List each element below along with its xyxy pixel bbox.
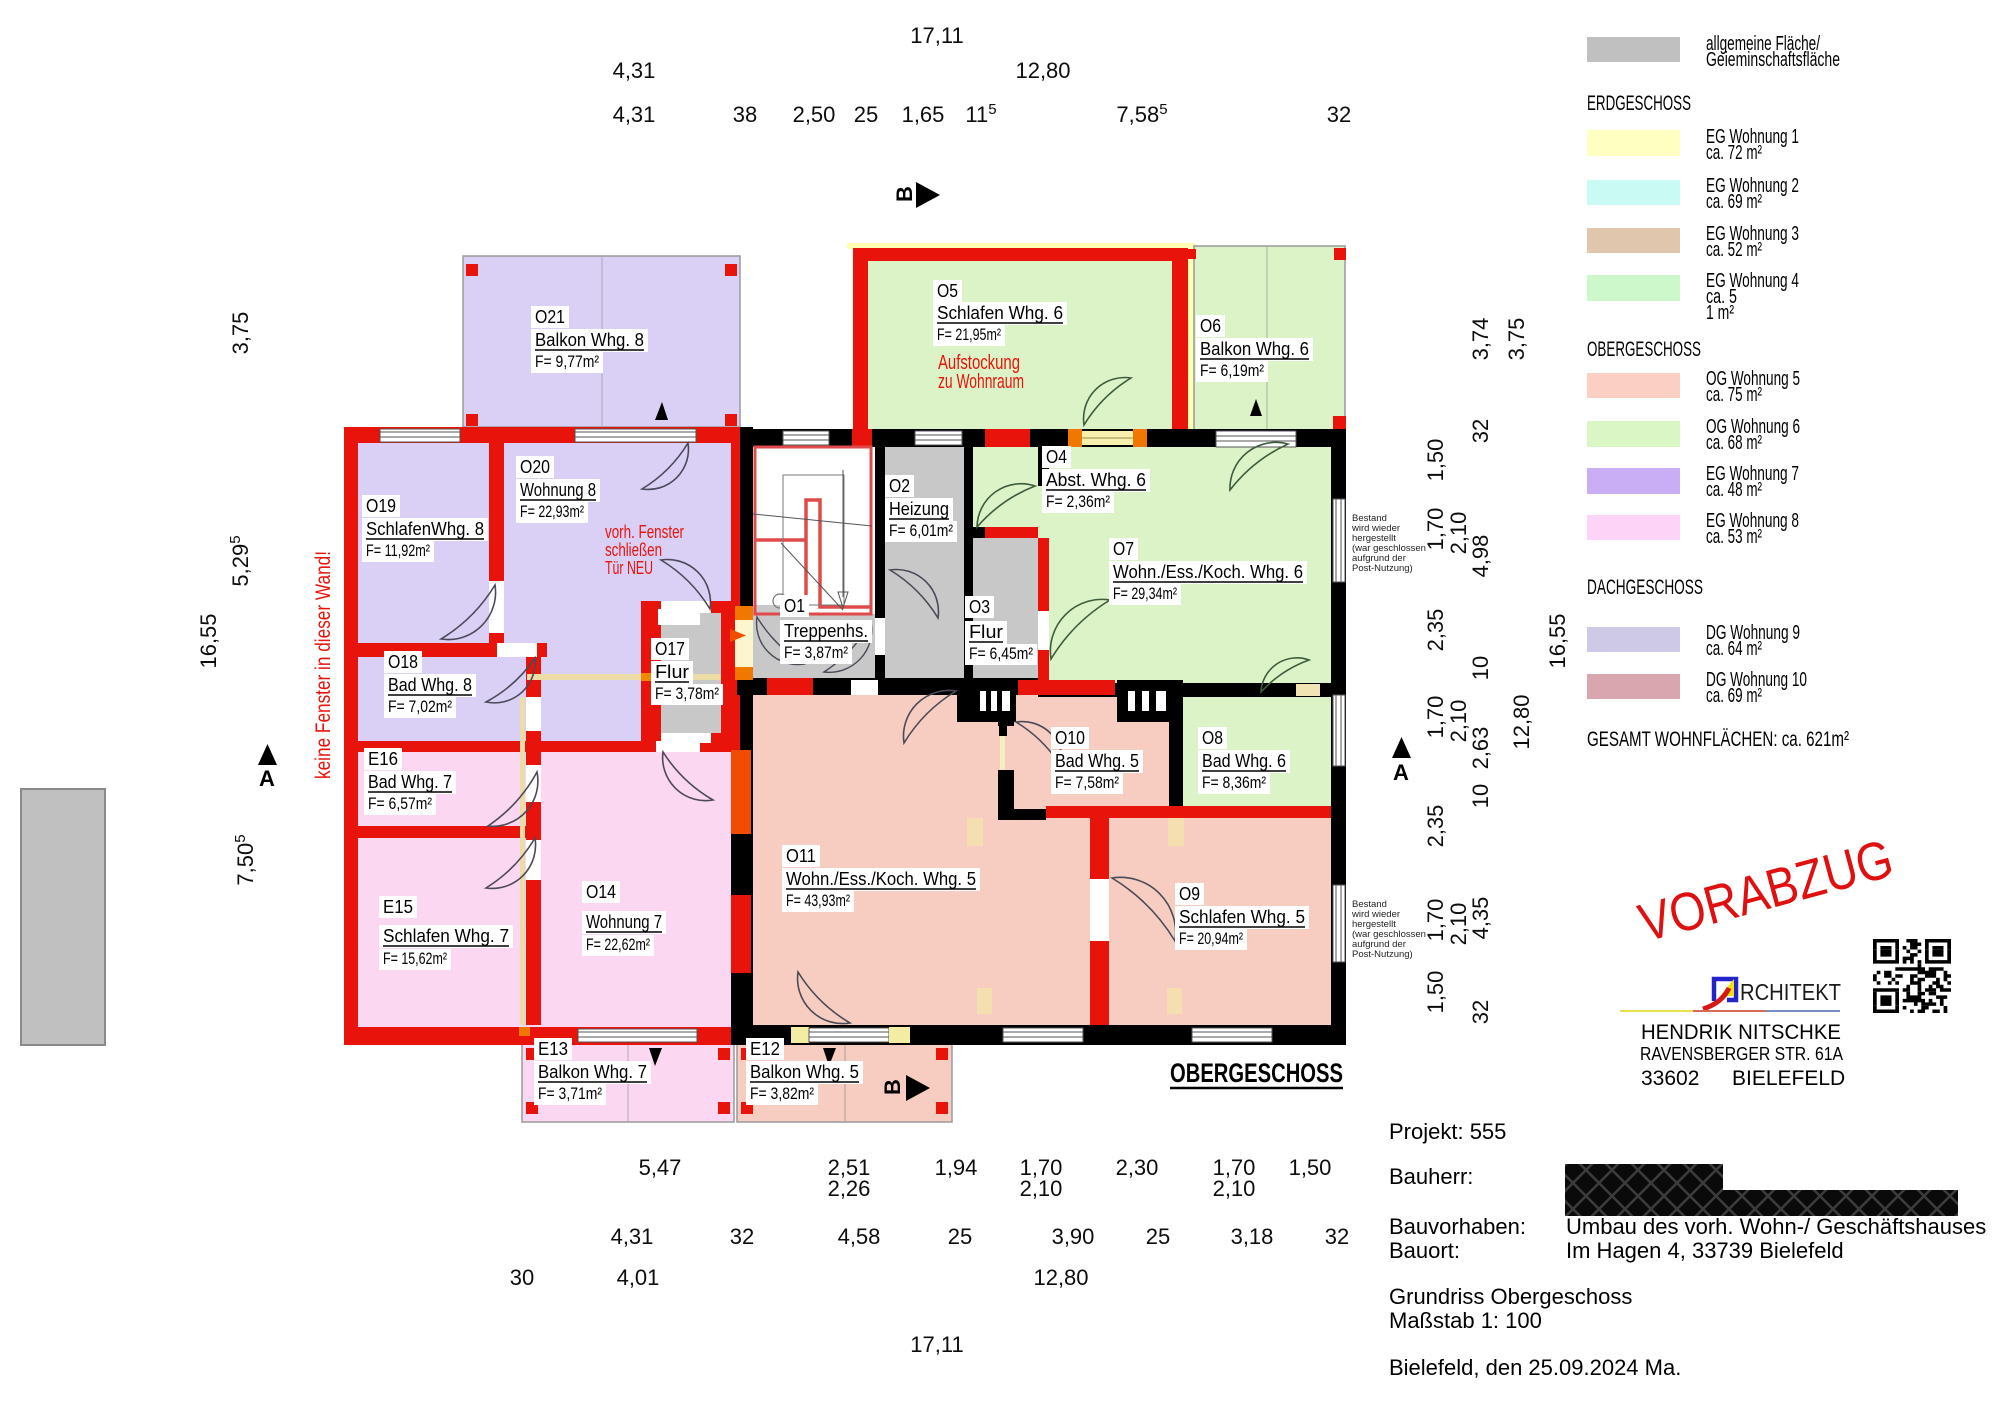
svg-text:Flur: Flur xyxy=(969,622,1003,642)
svg-text:O17: O17 xyxy=(655,639,685,659)
svg-text:vorh. Fenster: vorh. Fenster xyxy=(605,522,684,542)
svg-text:Bad Whg. 6: Bad Whg. 6 xyxy=(1202,751,1286,771)
svg-text:Abst. Whg. 6: Abst. Whg. 6 xyxy=(1046,470,1146,490)
svg-text:5,47: 5,47 xyxy=(639,1155,682,1180)
svg-text:F= 20,94m²: F= 20,94m² xyxy=(1179,929,1243,948)
svg-text:OBERGESCHOSS: OBERGESCHOSS xyxy=(1587,338,1701,361)
svg-text:3,18: 3,18 xyxy=(1231,1224,1274,1249)
svg-text:2,10: 2,10 xyxy=(1213,1176,1256,1201)
svg-text:keine Fenster in dieser Wand!: keine Fenster in dieser Wand! xyxy=(312,551,335,779)
svg-text:F= 3,71m²: F= 3,71m² xyxy=(538,1084,602,1103)
svg-text:Wohn./Ess./Koch. Whg. 5: Wohn./Ess./Koch. Whg. 5 xyxy=(786,869,976,889)
svg-text:F= 6,01m²: F= 6,01m² xyxy=(889,521,953,540)
svg-text:32: 32 xyxy=(1468,419,1493,443)
svg-text:Bauvorhaben:: Bauvorhaben: xyxy=(1389,1214,1526,1239)
svg-text:1,70: 1,70 xyxy=(1423,508,1448,551)
svg-text:Bielefeld, den 25.09.2024 Ma.: Bielefeld, den 25.09.2024 Ma. xyxy=(1389,1355,1681,1380)
svg-text:F= 6,57m²: F= 6,57m² xyxy=(368,794,432,813)
svg-text:25: 25 xyxy=(948,1224,972,1249)
svg-text:RCHITEKT: RCHITEKT xyxy=(1740,979,1841,1005)
svg-text:F= 22,93m²: F= 22,93m² xyxy=(520,502,584,521)
svg-text:1,50: 1,50 xyxy=(1423,439,1448,482)
svg-text:4,31: 4,31 xyxy=(613,102,656,127)
svg-text:Maßstab 1: 100: Maßstab 1: 100 xyxy=(1389,1308,1542,1333)
svg-text:Balkon Whg. 5: Balkon Whg. 5 xyxy=(750,1062,859,1082)
svg-text:O3: O3 xyxy=(969,597,990,617)
svg-text:2,26: 2,26 xyxy=(828,1176,871,1201)
svg-text:F= 3,78m²: F= 3,78m² xyxy=(655,684,719,703)
svg-text:O4: O4 xyxy=(1046,447,1067,467)
svg-text:ca. 69 m²: ca. 69 m² xyxy=(1706,685,1762,707)
svg-text:Tür NEU: Tür NEU xyxy=(605,558,653,578)
svg-text:ca. 48 m²: ca. 48 m² xyxy=(1706,479,1762,501)
svg-text:Heizung: Heizung xyxy=(889,499,949,519)
svg-text:32: 32 xyxy=(1327,102,1351,127)
svg-text:O10: O10 xyxy=(1055,728,1085,748)
svg-text:38: 38 xyxy=(733,102,757,127)
svg-text:30: 30 xyxy=(510,1265,534,1290)
svg-text:O8: O8 xyxy=(1202,728,1223,748)
svg-text:Bad Whg. 7: Bad Whg. 7 xyxy=(368,772,452,792)
svg-text:F= 29,34m²: F= 29,34m² xyxy=(1113,584,1177,603)
svg-text:ca. 68 m²: ca. 68 m² xyxy=(1706,432,1762,454)
svg-text:32: 32 xyxy=(1325,1224,1349,1249)
svg-text:Im Hagen 4, 33739 Bielefeld: Im Hagen 4, 33739 Bielefeld xyxy=(1566,1238,1844,1263)
svg-text:ca. 53 m²: ca. 53 m² xyxy=(1706,526,1762,548)
svg-text:O11: O11 xyxy=(786,846,816,866)
svg-text:Umbau des vorh. Wohn-/ Geschäf: Umbau des vorh. Wohn-/ Geschäftshauses xyxy=(1566,1214,1986,1239)
svg-text:2,30: 2,30 xyxy=(1116,1155,1159,1180)
svg-text:Treppenhs.: Treppenhs. xyxy=(784,621,868,641)
svg-text:Wohn./Ess./Koch. Whg. 6: Wohn./Ess./Koch. Whg. 6 xyxy=(1113,562,1303,582)
svg-text:25: 25 xyxy=(854,102,878,127)
svg-text:1,50: 1,50 xyxy=(1289,1155,1332,1180)
svg-text:2,35: 2,35 xyxy=(1423,805,1448,848)
svg-text:4,58: 4,58 xyxy=(838,1224,881,1249)
svg-text:17,11: 17,11 xyxy=(910,1332,963,1357)
svg-text:GESAMT WOHNFLÄCHEN: ca. 621m²: GESAMT WOHNFLÄCHEN: ca. 621m² xyxy=(1587,728,1849,751)
svg-text:ERDGESCHOSS: ERDGESCHOSS xyxy=(1587,92,1691,115)
svg-text:2,10: 2,10 xyxy=(1020,1176,1063,1201)
svg-text:4,01: 4,01 xyxy=(617,1265,660,1290)
svg-text:3,90: 3,90 xyxy=(1052,1224,1095,1249)
svg-text:B: B xyxy=(880,1079,905,1095)
svg-text:Post-Nutzung): Post-Nutzung) xyxy=(1352,563,1413,574)
svg-text:Bad Whg. 5: Bad Whg. 5 xyxy=(1055,751,1139,771)
svg-text:O20: O20 xyxy=(520,457,550,477)
svg-text:B: B xyxy=(892,186,917,202)
svg-text:A: A xyxy=(1393,760,1409,785)
svg-text:4,31: 4,31 xyxy=(613,58,656,83)
svg-text:zu Wohnraum: zu Wohnraum xyxy=(938,371,1024,393)
svg-text:Schlafen Whg. 5: Schlafen Whg. 5 xyxy=(1179,907,1305,927)
svg-text:DACHGESCHOSS: DACHGESCHOSS xyxy=(1587,576,1703,599)
svg-text:17,11: 17,11 xyxy=(910,23,963,48)
svg-text:BIELEFELD: BIELEFELD xyxy=(1732,1067,1845,1090)
svg-text:ca. 75 m²: ca. 75 m² xyxy=(1706,384,1762,406)
svg-text:F= 6,19m²: F= 6,19m² xyxy=(1200,361,1264,380)
svg-text:32: 32 xyxy=(730,1224,754,1249)
svg-text:F= 22,62m²: F= 22,62m² xyxy=(586,935,650,954)
svg-text:Flur: Flur xyxy=(655,662,689,682)
svg-text:ca. 69 m²: ca. 69 m² xyxy=(1706,191,1762,213)
svg-text:Projekt: 555: Projekt: 555 xyxy=(1389,1119,1506,1144)
svg-text:F= 3,82m²: F= 3,82m² xyxy=(750,1084,814,1103)
svg-text:O14: O14 xyxy=(586,882,616,902)
svg-text:F= 11,92m²: F= 11,92m² xyxy=(366,541,430,560)
svg-text:F= 7,58m²: F= 7,58m² xyxy=(1055,773,1119,792)
svg-text:O1: O1 xyxy=(784,596,805,616)
svg-text:O5: O5 xyxy=(937,281,958,301)
svg-text:ca. 72 m²: ca. 72 m² xyxy=(1706,142,1762,164)
svg-text:O18: O18 xyxy=(388,652,418,672)
svg-text:Post-Nutzung): Post-Nutzung) xyxy=(1352,949,1413,960)
svg-text:Schlafen Whg. 7: Schlafen Whg. 7 xyxy=(383,926,509,946)
svg-text:F= 15,62m²: F= 15,62m² xyxy=(383,949,447,968)
svg-text:Balkon Whg. 8: Balkon Whg. 8 xyxy=(535,330,644,350)
svg-text:RAVENSBERGER STR. 61A: RAVENSBERGER STR. 61A xyxy=(1640,1044,1843,1064)
svg-text:4,35: 4,35 xyxy=(1468,897,1493,940)
svg-text:O6: O6 xyxy=(1200,316,1221,336)
svg-text:Bad Whg. 8: Bad Whg. 8 xyxy=(388,675,472,695)
svg-text:Schlafen Whg. 6: Schlafen Whg. 6 xyxy=(937,303,1063,323)
svg-text:1,94: 1,94 xyxy=(935,1155,978,1180)
svg-text:O2: O2 xyxy=(889,476,910,496)
svg-text:E13: E13 xyxy=(538,1039,568,1059)
svg-text:Geieminschaftsfläche: Geieminschaftsfläche xyxy=(1706,49,1840,71)
svg-text:1,70: 1,70 xyxy=(1423,899,1448,942)
svg-text:Bauort:: Bauort: xyxy=(1389,1238,1460,1263)
svg-text:F= 6,45m²: F= 6,45m² xyxy=(969,644,1033,663)
svg-text:O21: O21 xyxy=(535,307,565,327)
svg-text:O19: O19 xyxy=(366,496,396,516)
svg-text:12,80: 12,80 xyxy=(1033,1265,1088,1290)
svg-text:4,31: 4,31 xyxy=(611,1224,654,1249)
svg-text:O9: O9 xyxy=(1179,884,1200,904)
svg-text:Wohnung 8: Wohnung 8 xyxy=(520,480,596,500)
svg-text:F= 8,36m²: F= 8,36m² xyxy=(1202,773,1266,792)
svg-text:2,63: 2,63 xyxy=(1468,727,1493,770)
svg-text:Balkon Whg. 7: Balkon Whg. 7 xyxy=(538,1062,647,1082)
svg-text:E15: E15 xyxy=(383,897,413,917)
svg-text:3,75: 3,75 xyxy=(228,312,253,355)
svg-text:Grundriss Obergeschoss: Grundriss Obergeschoss xyxy=(1389,1284,1632,1309)
svg-text:schließen: schließen xyxy=(605,540,662,560)
svg-text:32: 32 xyxy=(1468,1000,1493,1024)
svg-text:16,55: 16,55 xyxy=(196,613,221,668)
svg-text:O7: O7 xyxy=(1113,539,1134,559)
svg-text:3,75: 3,75 xyxy=(1504,318,1529,361)
svg-text:E12: E12 xyxy=(750,1039,780,1059)
svg-text:Balkon Whg. 6: Balkon Whg. 6 xyxy=(1200,339,1309,359)
svg-text:1,50: 1,50 xyxy=(1423,971,1448,1014)
svg-text:10: 10 xyxy=(1468,784,1493,808)
svg-text:4,98: 4,98 xyxy=(1468,535,1493,578)
svg-text:A: A xyxy=(259,766,275,791)
svg-text:Bauherr:: Bauherr: xyxy=(1389,1164,1473,1189)
svg-text:F= 21,95m²: F= 21,95m² xyxy=(937,325,1001,344)
svg-text:12,80: 12,80 xyxy=(1509,694,1534,749)
svg-text:F= 2,36m²: F= 2,36m² xyxy=(1046,492,1110,511)
svg-text:33602: 33602 xyxy=(1641,1067,1699,1090)
svg-text:F= 7,02m²: F= 7,02m² xyxy=(388,697,452,716)
svg-text:16,55: 16,55 xyxy=(1545,613,1570,668)
svg-text:2,35: 2,35 xyxy=(1423,609,1448,652)
svg-text:E16: E16 xyxy=(368,749,398,769)
svg-text:ca. 52 m²: ca. 52 m² xyxy=(1706,239,1762,261)
svg-text:3,74: 3,74 xyxy=(1468,318,1493,361)
svg-text:1,65: 1,65 xyxy=(902,102,945,127)
svg-text:OBERGESCHOSS: OBERGESCHOSS xyxy=(1170,1058,1343,1088)
svg-text:ca. 64 m²: ca. 64 m² xyxy=(1706,638,1762,660)
svg-text:2,50: 2,50 xyxy=(793,102,836,127)
svg-text:F= 43,93m²: F= 43,93m² xyxy=(786,891,850,910)
svg-text:10: 10 xyxy=(1468,656,1493,680)
svg-text:25: 25 xyxy=(1146,1224,1170,1249)
svg-text:SchlafenWhg. 8: SchlafenWhg. 8 xyxy=(366,519,484,539)
svg-text:1 m²: 1 m² xyxy=(1706,302,1734,324)
svg-text:1,70: 1,70 xyxy=(1423,696,1448,739)
svg-text:HENDRIK NITSCHKE: HENDRIK NITSCHKE xyxy=(1641,1021,1841,1044)
svg-text:12,80: 12,80 xyxy=(1015,58,1070,83)
svg-text:F= 3,87m²: F= 3,87m² xyxy=(784,643,848,662)
svg-text:F= 9,77m²: F= 9,77m² xyxy=(535,352,599,371)
svg-text:Wohnung 7: Wohnung 7 xyxy=(586,912,662,932)
